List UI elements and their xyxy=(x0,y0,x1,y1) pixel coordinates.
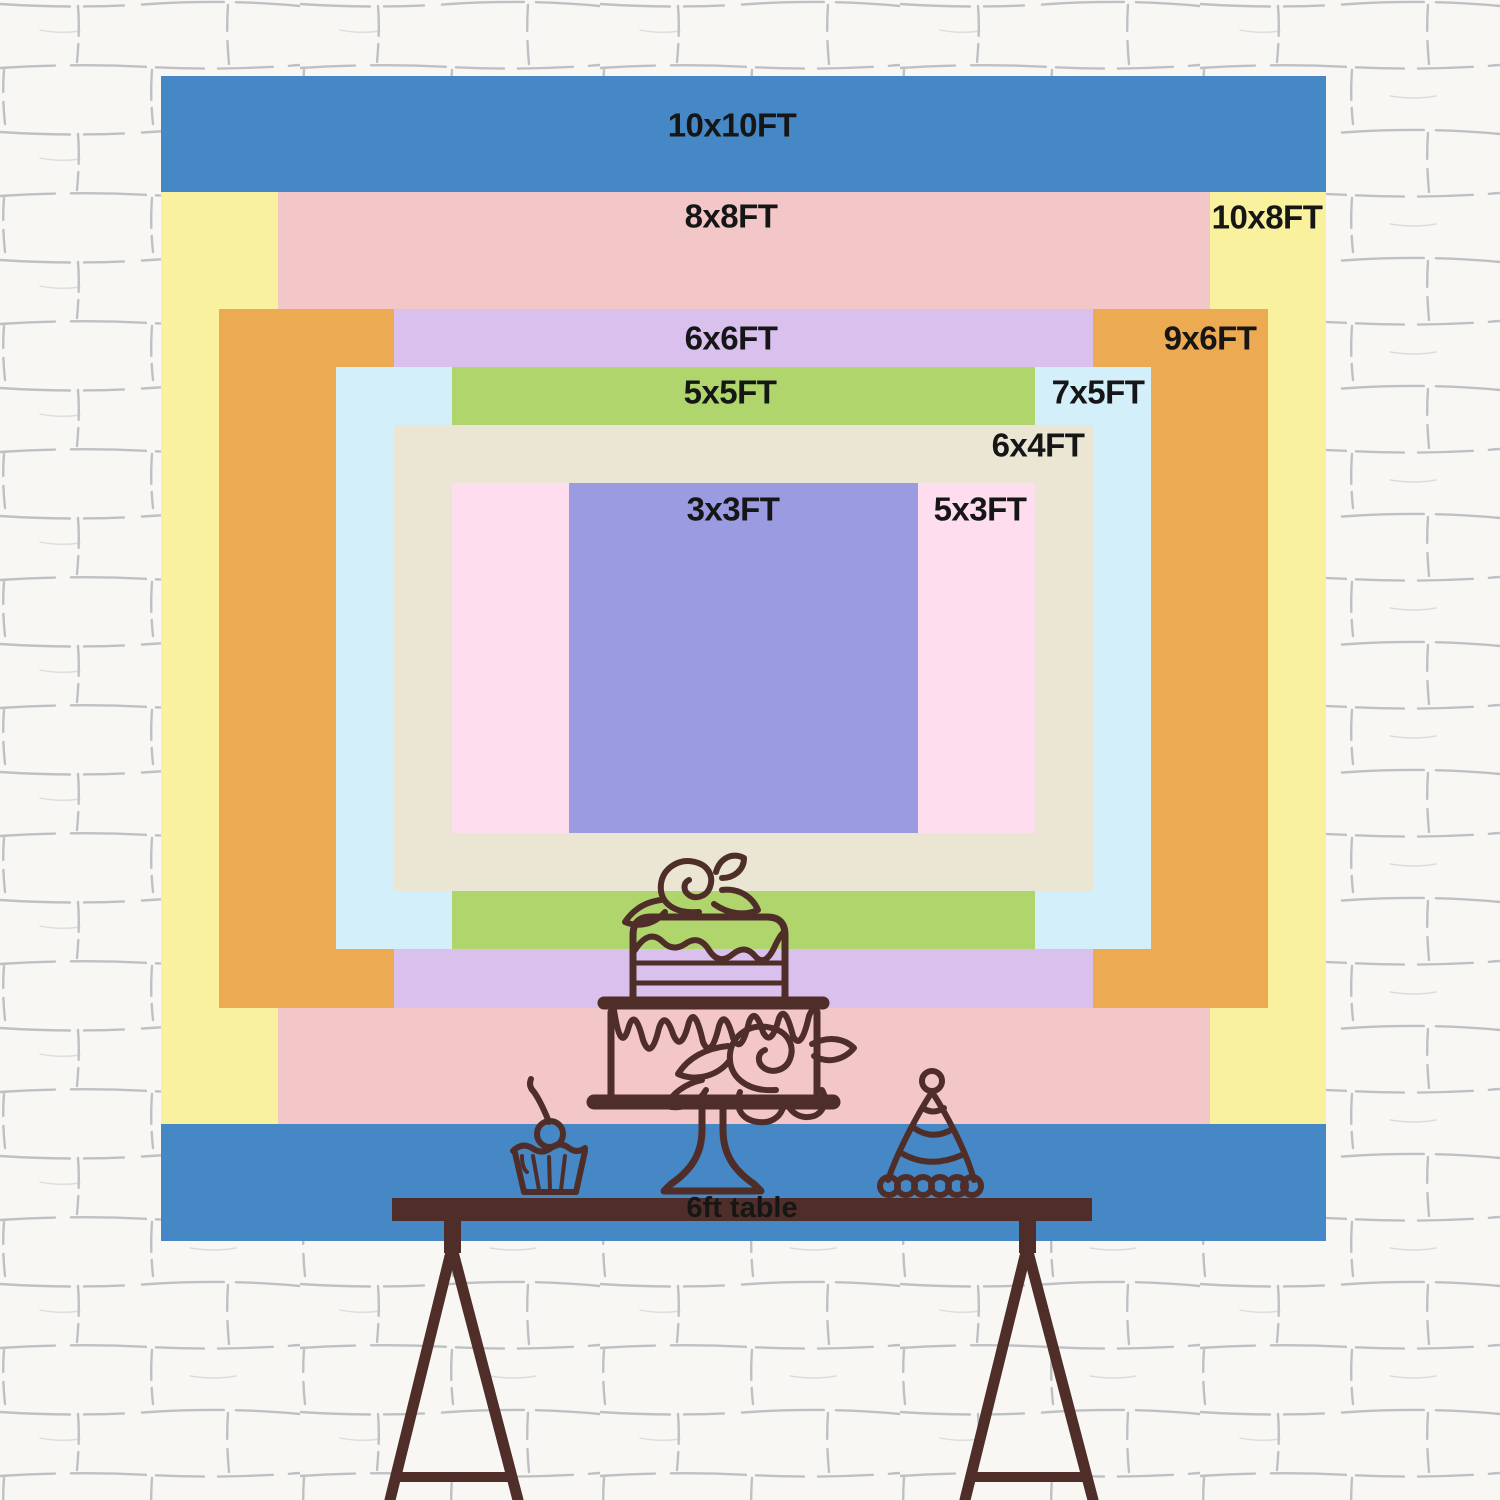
cupcake-icon xyxy=(513,1079,585,1192)
table-size-label: 6ft table xyxy=(392,1194,1092,1222)
party-hat-icon xyxy=(880,1071,981,1195)
table-leg-left xyxy=(390,1248,518,1500)
table-icon xyxy=(390,1198,1093,1500)
cake-icon xyxy=(594,856,854,1191)
table-leg-right xyxy=(965,1248,1093,1500)
backdrop-size-chart-page: 10x10FT10x8FT8x8FT9x6FT6x6FT7x5FT5x5FT6x… xyxy=(0,0,1500,1500)
decor-illustration xyxy=(0,0,1500,1500)
